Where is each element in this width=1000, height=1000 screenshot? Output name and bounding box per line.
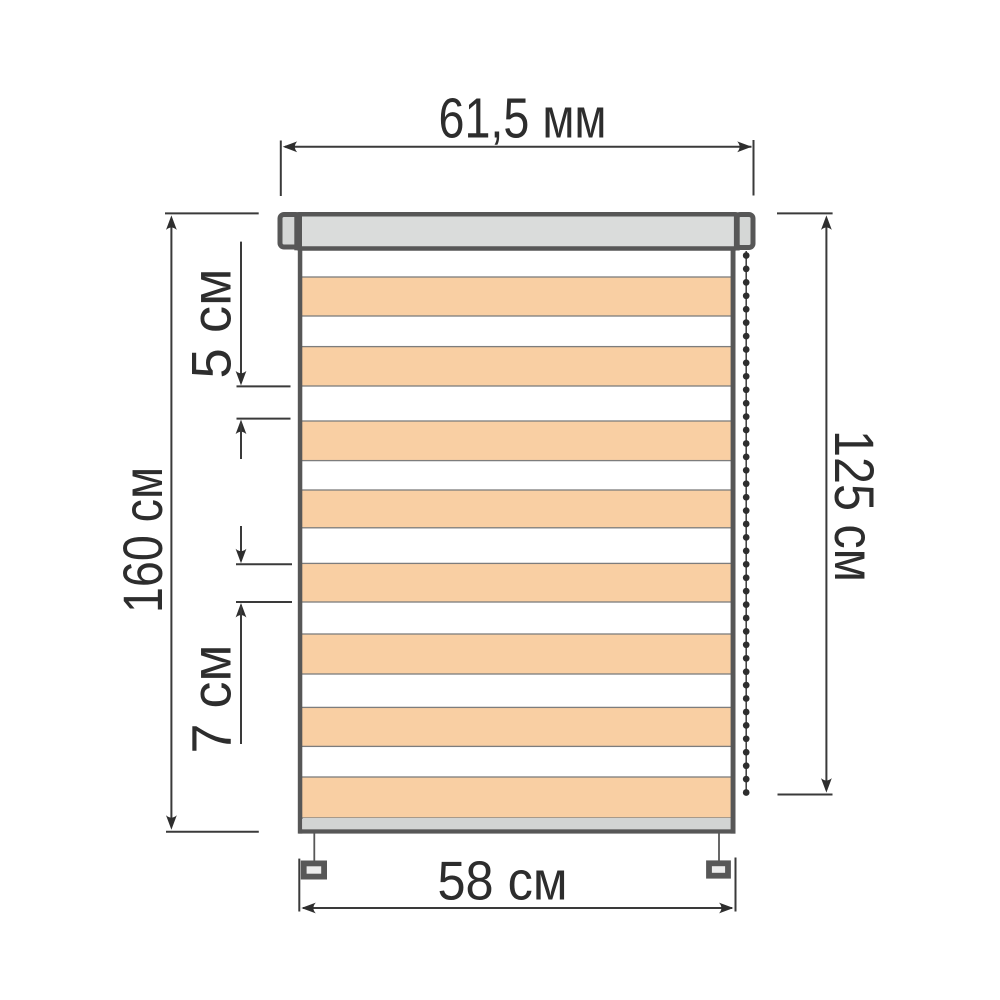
svg-text:58 см: 58 см: [438, 849, 568, 911]
svg-text:61,5 мм: 61,5 мм: [439, 87, 607, 150]
svg-text:160 см: 160 см: [111, 467, 174, 613]
svg-text:125 см: 125 см: [823, 430, 886, 582]
svg-text:7 см: 7 см: [180, 645, 243, 754]
svg-text:5 см: 5 см: [180, 269, 243, 379]
